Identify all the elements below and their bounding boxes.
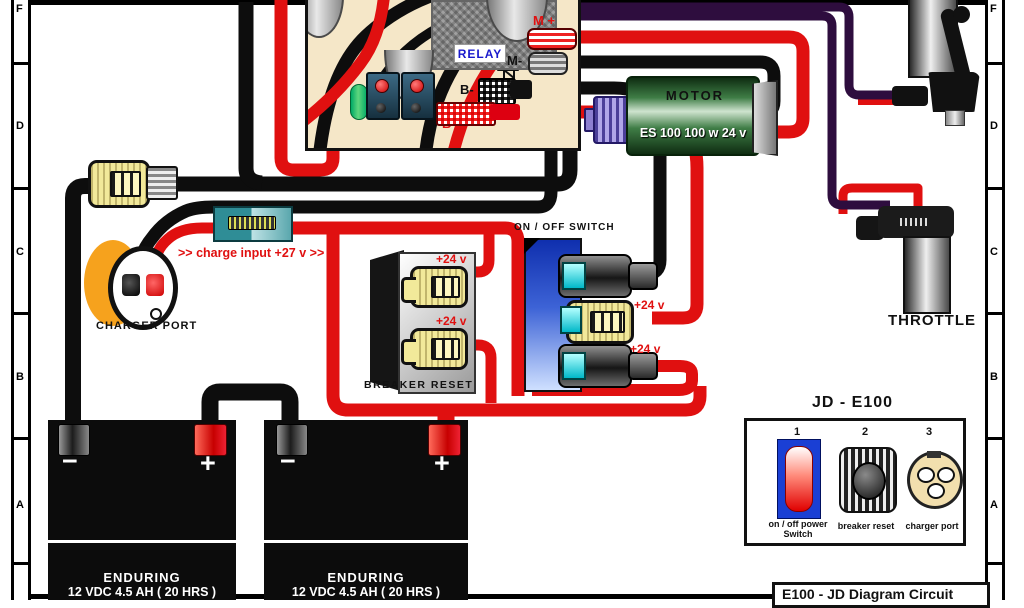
battery1-neg-sign: − [62,448,78,475]
switch-voltage-bottom: +24 v [630,342,660,356]
legend-item-num: 3 [919,426,939,438]
b-plus-plug-tip [490,104,520,120]
m-minus-plug [528,52,568,75]
legend-switch-icon [777,439,821,519]
wiring-diagram-page: { "frame": { "ruler_letters": ["F", "D",… [0,0,1024,600]
breaker-label: BREAKER RESET [364,379,473,391]
breaker-connector-bottom [410,328,468,370]
switch-pin [560,306,582,334]
relay-label-plate: RELAY [454,44,506,63]
switch-voltage-mid: +24 v [634,298,664,312]
motor-spec: ES 100 100 w 24 v [634,126,752,140]
legend-charger-icon [907,451,963,509]
throttle-connector-stripes [900,218,928,226]
legend-item-num: 1 [787,426,807,438]
legend-breaker-icon [839,447,897,513]
inline-connector-icon [88,160,150,208]
breaker-voltage-bottom: +24 v [436,314,466,328]
wire-top-drop-black [246,2,262,183]
battery-label-divider [48,540,236,543]
charger-port-pin-pos [146,274,164,296]
legend-item-label: on / off powerSwitch [761,519,835,539]
b-minus-label: B- [460,82,474,97]
legend-item-label: charger port [901,521,963,531]
throttle-grip [903,236,951,314]
terminal-block [401,72,435,120]
diagram-title-box: E100 - JD Diagram Circuit [772,582,990,608]
legend-title: JD - E100 [812,394,893,412]
brake-nozzle [945,110,965,126]
throttle-label: THROTTLE [888,312,976,329]
legend-box: 1 2 3 on / off powerSwitch breaker reset… [744,418,966,546]
charge-input-label: >> charge input +27 v >> [178,246,324,260]
inline-connector-end [146,166,178,200]
breaker-connector-top [410,266,468,308]
motor-end-cap [752,80,778,156]
battery1-pos-sign: + [200,450,216,477]
brake-lever-body [924,72,980,112]
breaker-voltage-top: +24 v [436,252,466,266]
switch-pin [562,352,586,380]
charger-port-index-hole [150,308,162,320]
b-plus-plug [436,102,496,126]
battery2-neg-sign: − [280,448,296,475]
wire-connector-to-board [160,148,570,184]
charge-fuse-element [228,216,276,230]
switch-connector-bottom-tip [628,352,658,380]
battery-brand: ENDURING [48,570,236,585]
switch-pin [562,262,586,290]
legend-item-num: 2 [855,426,875,438]
charger-port-label: CHARGER PORT [96,320,197,332]
battery-brand: ENDURING [264,570,468,585]
brake-wire-plug [892,86,928,106]
m-plus-label: M + [533,13,555,28]
motor-name: MOTOR [655,88,735,103]
battery2-pos-sign: + [434,450,450,477]
b-minus-plug-tip [510,80,532,99]
switch-label: ON / OFF SWITCH [514,222,615,233]
charger-port-pin-neg [122,274,140,296]
diagram-title: E100 - JD Diagram Circuit [775,585,987,602]
charger-port-socket [108,246,178,330]
switch-panel-fold [524,238,540,254]
relay-label: RELAY [458,47,503,61]
terminal-block [366,72,400,120]
legend-item-label: breaker reset [833,521,899,531]
battery-spec: 12 VDC 4.5 AH ( 20 HRS ) [48,585,236,599]
m-plus-plug [527,28,577,50]
m-minus-label: M- [507,53,522,68]
switch-connector-top-tip [628,262,658,290]
brake-lever-icon [953,6,970,23]
battery-spec: 12 VDC 4.5 AH ( 20 HRS ) [264,585,468,599]
battery-label-divider [264,540,468,543]
